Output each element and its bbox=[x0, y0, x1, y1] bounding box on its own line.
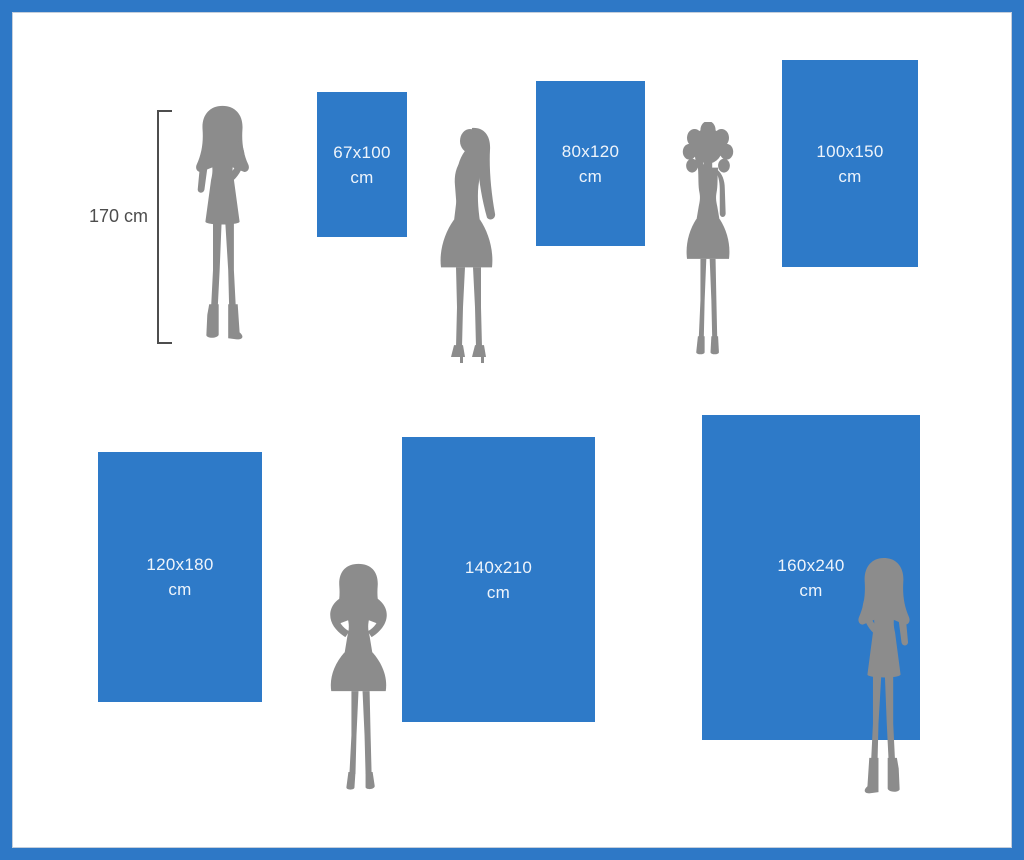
height-bracket bbox=[157, 110, 173, 344]
height-label: 170 cm bbox=[70, 206, 148, 227]
woman-silhouette-5 bbox=[838, 555, 930, 800]
size-dimensions: 67x100 bbox=[333, 140, 391, 165]
size-unit: cm bbox=[777, 578, 844, 603]
size-rect-120x180: 120x180 cm bbox=[98, 452, 262, 702]
woman-silhouette-3 bbox=[666, 122, 750, 360]
size-comparison-canvas: 170 cm 67x100 cm bbox=[0, 0, 1024, 860]
size-unit: cm bbox=[816, 164, 883, 189]
size-label: 80x120 cm bbox=[562, 139, 620, 189]
size-dimensions: 120x180 bbox=[146, 552, 213, 577]
size-unit: cm bbox=[562, 164, 620, 189]
size-unit: cm bbox=[465, 580, 532, 605]
size-rect-100x150: 100x150 cm bbox=[782, 60, 918, 267]
size-dimensions: 140x210 bbox=[465, 555, 532, 580]
woman-silhouette-4 bbox=[306, 562, 412, 798]
size-label: 100x150 cm bbox=[816, 139, 883, 189]
size-rect-140x210: 140x210 cm bbox=[402, 437, 595, 722]
size-rect-80x120: 80x120 cm bbox=[536, 81, 645, 246]
size-rect-67x100: 67x100 cm bbox=[317, 92, 407, 237]
size-label: 120x180 cm bbox=[146, 552, 213, 602]
size-label: 160x240 cm bbox=[777, 553, 844, 603]
size-dimensions: 100x150 bbox=[816, 139, 883, 164]
size-label: 67x100 cm bbox=[333, 140, 391, 190]
size-dimensions: 160x240 bbox=[777, 553, 844, 578]
size-unit: cm bbox=[146, 577, 213, 602]
size-unit: cm bbox=[333, 165, 391, 190]
woman-silhouette-1 bbox=[175, 103, 270, 346]
size-dimensions: 80x120 bbox=[562, 139, 620, 164]
woman-silhouette-2 bbox=[432, 126, 522, 365]
size-label: 140x210 cm bbox=[465, 555, 532, 605]
